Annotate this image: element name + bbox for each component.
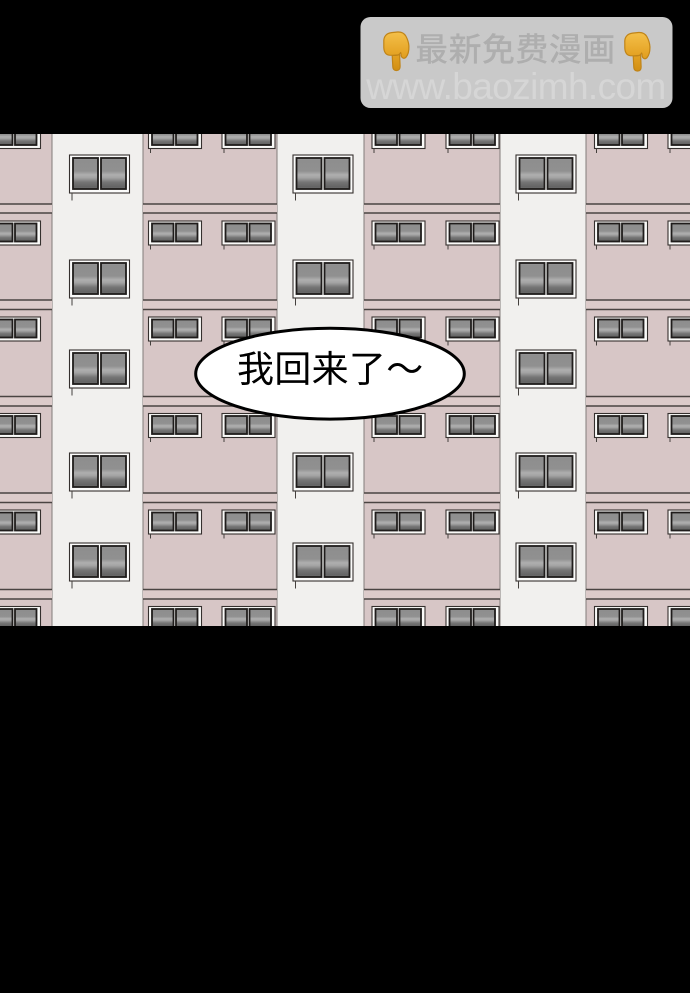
svg-text:www.baozimh.com: www.baozimh.com <box>365 66 665 107</box>
